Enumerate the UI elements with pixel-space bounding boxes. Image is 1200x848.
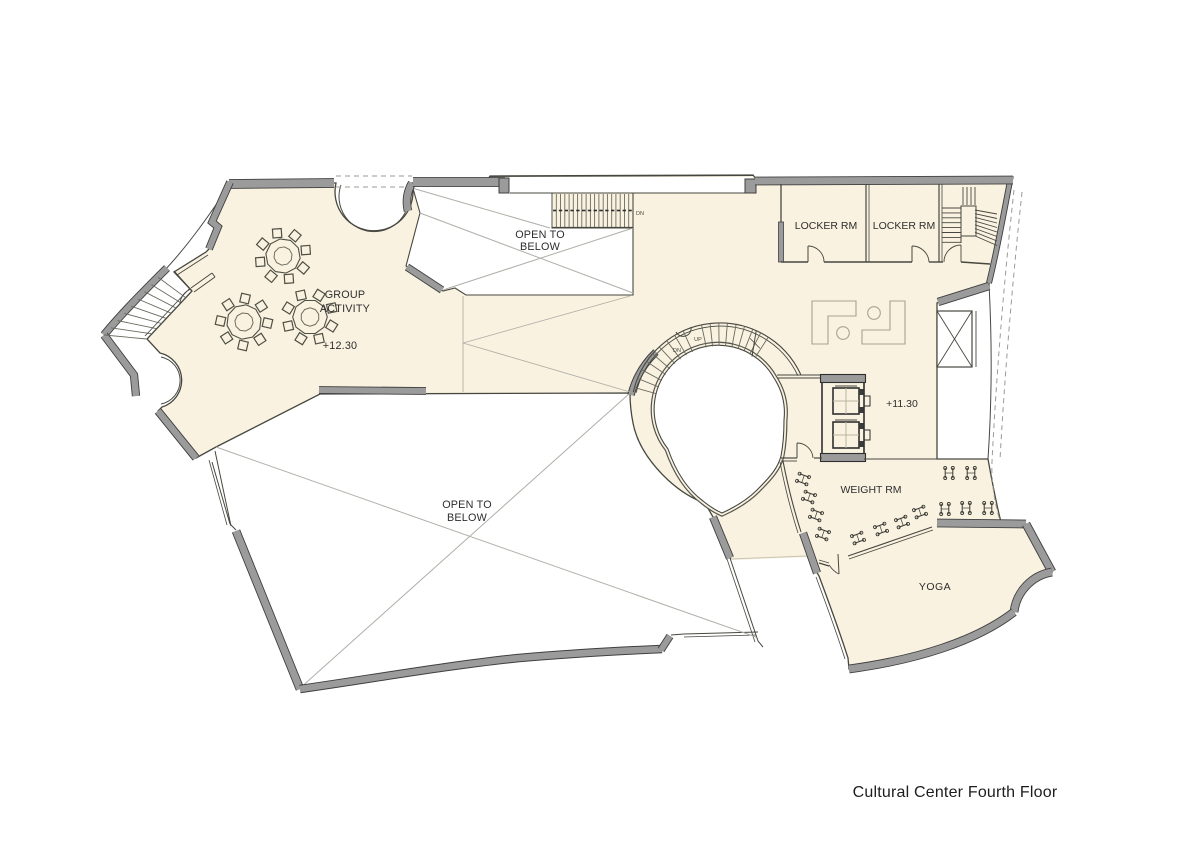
svg-text:UP: UP — [694, 337, 702, 343]
svg-text:OPEN TO: OPEN TO — [515, 229, 565, 241]
svg-text:YOGA: YOGA — [919, 581, 951, 593]
svg-text:BELOW: BELOW — [447, 512, 488, 524]
svg-text:BELOW: BELOW — [520, 241, 561, 253]
svg-text:DN: DN — [636, 211, 644, 217]
svg-text:Cultural Center Fourth Floor: Cultural Center Fourth Floor — [853, 784, 1058, 801]
svg-text:DN: DN — [673, 348, 681, 354]
svg-text:GROUP: GROUP — [325, 289, 366, 301]
svg-text:OPEN TO: OPEN TO — [442, 499, 492, 511]
svg-text:LOCKER RM: LOCKER RM — [873, 220, 935, 232]
svg-text:+12.30: +12.30 — [323, 340, 358, 352]
svg-text:ACTIVITY: ACTIVITY — [320, 303, 370, 315]
svg-text:+11.30: +11.30 — [886, 398, 918, 410]
svg-text:LOCKER RM: LOCKER RM — [795, 220, 857, 232]
svg-text:WEIGHT RM: WEIGHT RM — [840, 484, 901, 496]
